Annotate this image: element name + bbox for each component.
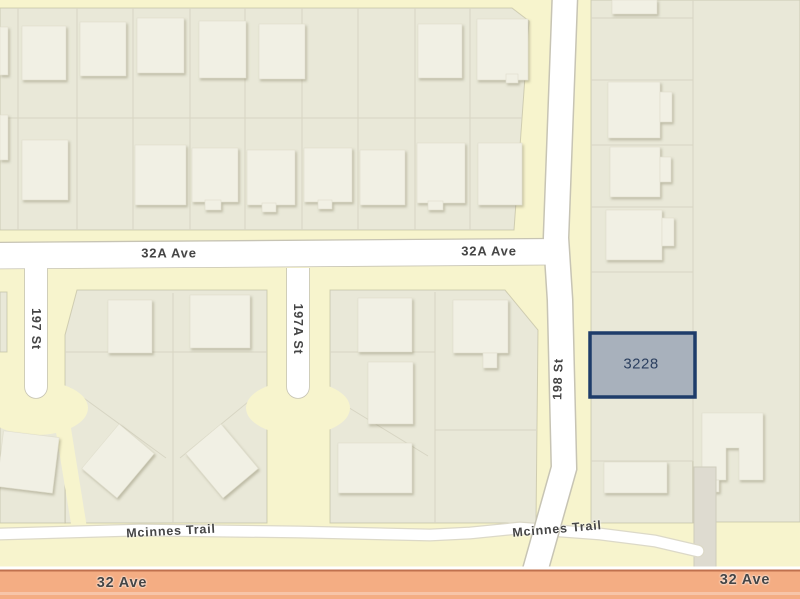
building [199,21,246,78]
building [418,24,462,78]
parcel-3228-label: 3228 [623,356,658,373]
building [137,18,184,73]
building [0,27,8,75]
building [360,150,405,205]
building [608,82,660,138]
building [0,431,59,493]
building [205,200,221,210]
building [453,300,508,353]
building [304,148,352,202]
building [190,295,250,348]
building [259,24,305,79]
building [506,74,518,83]
building [22,26,66,80]
building [612,0,657,14]
building [477,19,528,80]
building [368,362,413,424]
building [604,462,667,493]
street-label-32a-ave-west: 32A Ave [141,246,196,261]
building [660,157,671,182]
building [192,148,238,202]
map-canvas[interactable]: 32A Ave 32A Ave 197 St 197A St 198 St Mc… [0,0,800,599]
street-label-197a-st: 197A St [291,304,305,355]
building [478,143,522,205]
street-label-198-st: 198 St [550,358,565,400]
building [318,200,332,209]
building [606,210,662,260]
building [428,201,443,210]
building [108,300,152,353]
street-label-32a-ave-east: 32A Ave [461,244,516,259]
building [417,143,465,203]
map-graphics [0,0,800,599]
building [662,218,674,246]
building [610,147,660,197]
building [262,203,276,212]
building [660,92,672,122]
street-label-32-ave-west: 32 Ave [97,575,147,591]
building [338,443,412,493]
building [135,145,186,205]
street-label-32-ave-east: 32 Ave [720,572,770,588]
building [483,353,497,368]
building [358,298,412,352]
building [80,22,126,76]
building [0,115,8,160]
building [22,140,68,200]
street-label-197-st: 197 St [29,308,43,350]
building [247,150,295,205]
